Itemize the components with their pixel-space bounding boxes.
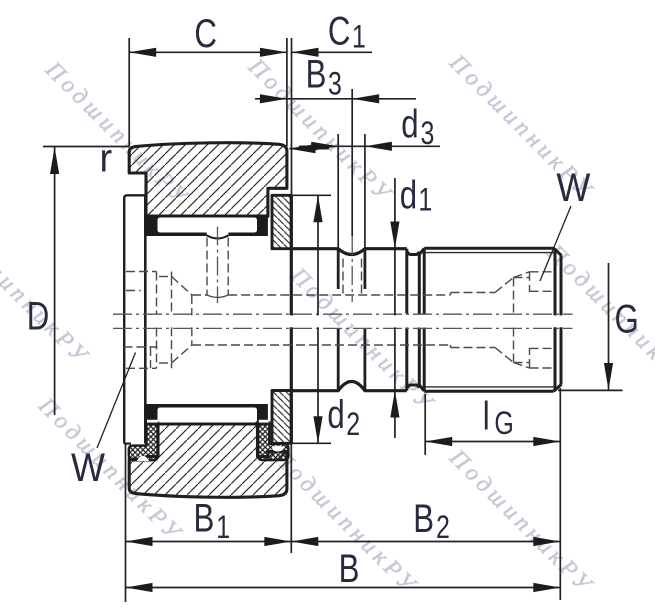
svg-text:D: D <box>27 294 50 339</box>
svg-text:W: W <box>556 166 590 210</box>
svg-text:W: W <box>71 446 105 490</box>
svg-text:B: B <box>339 546 360 591</box>
svg-text:r: r <box>100 137 113 181</box>
svg-text:C: C <box>194 11 217 56</box>
svg-text:G: G <box>615 297 639 342</box>
